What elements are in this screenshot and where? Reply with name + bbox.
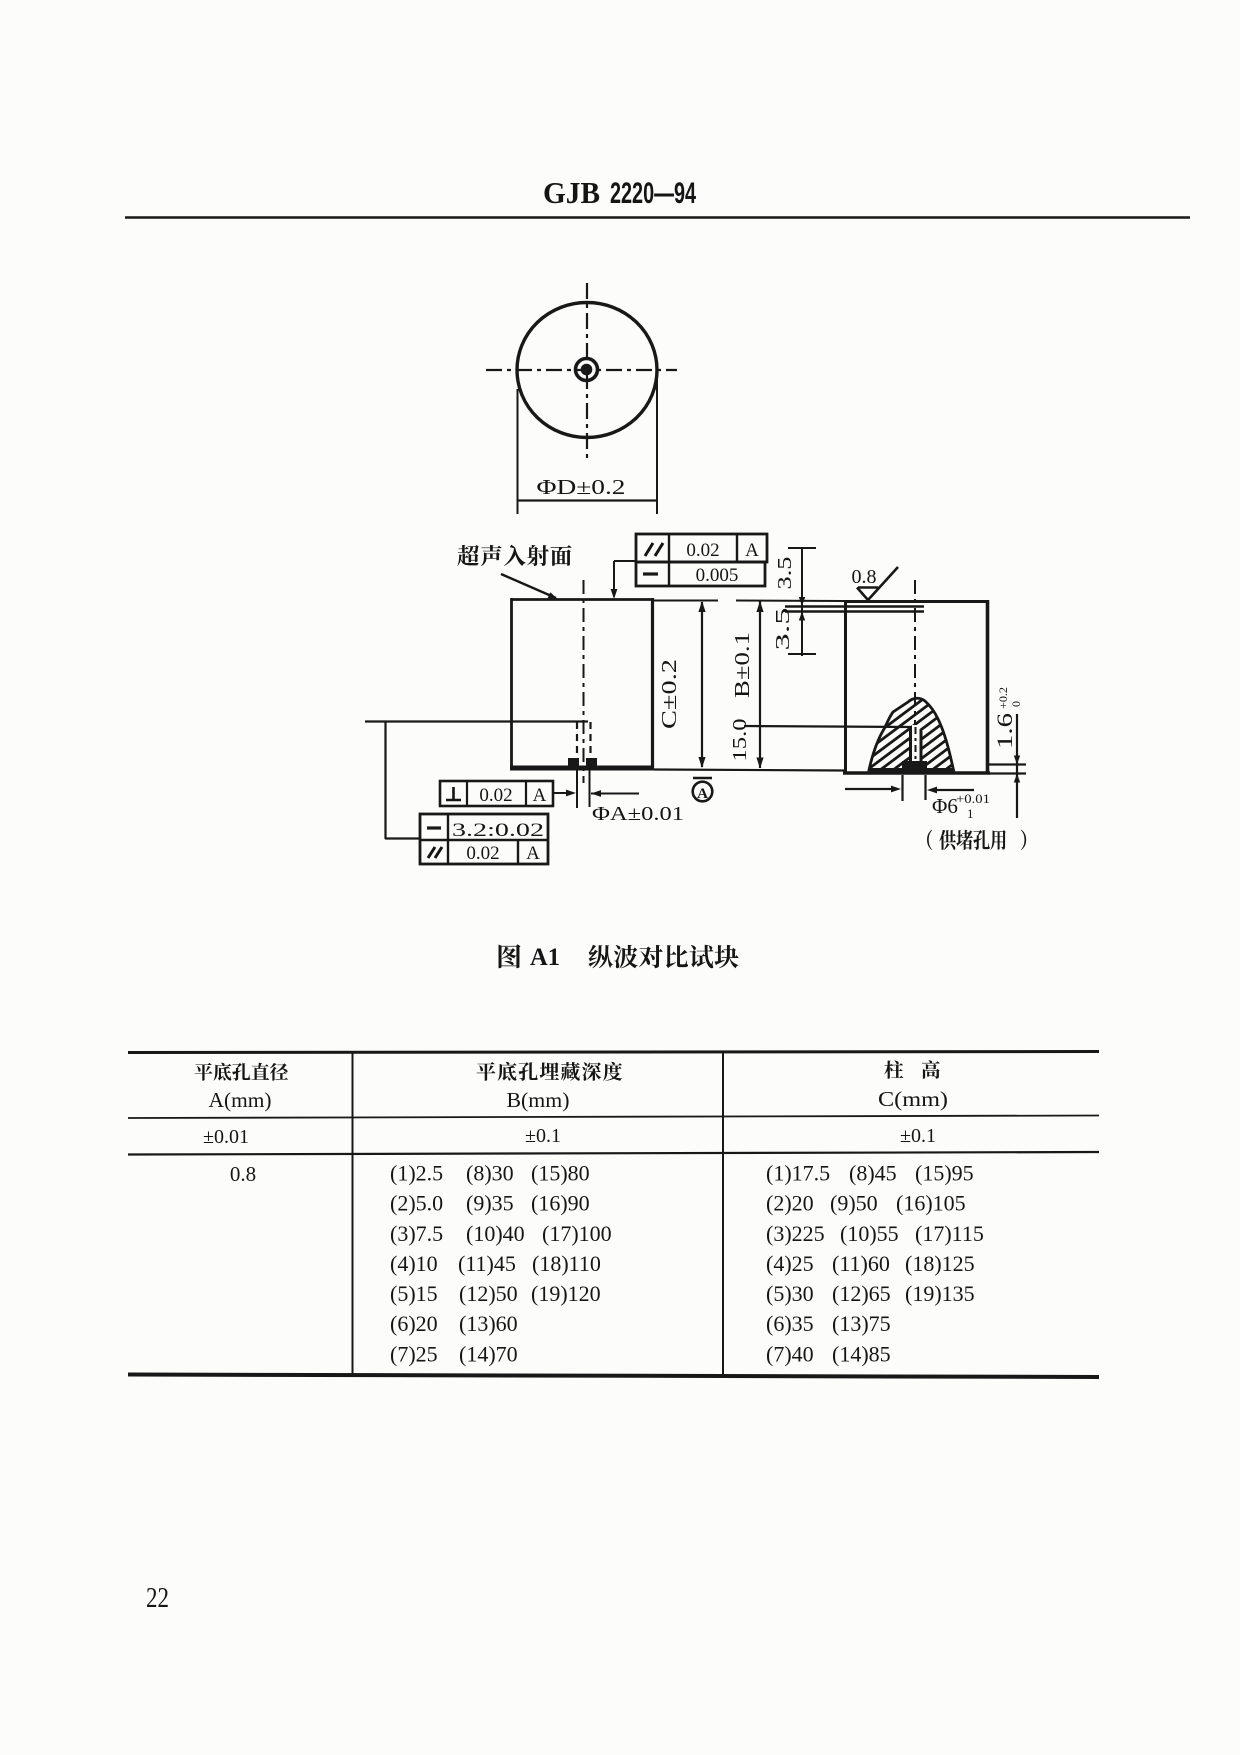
svg-text:(4)25: (4)25: [766, 1251, 814, 1276]
svg-text:22: 22: [146, 1582, 169, 1614]
svg-text:A1: A1: [530, 944, 560, 971]
svg-text:1: 1: [967, 806, 974, 821]
svg-text:B±0.1: B±0.1: [730, 632, 754, 698]
svg-text:0.005: 0.005: [696, 565, 739, 586]
svg-text:(14)85: (14)85: [832, 1341, 891, 1366]
svg-text:0.02: 0.02: [466, 843, 499, 864]
svg-text:0.8: 0.8: [230, 1162, 256, 1186]
svg-text:B(mm): B(mm): [507, 1088, 570, 1112]
svg-text:±0.1: ±0.1: [900, 1125, 936, 1147]
svg-text:ΦA±0.01: ΦA±0.01: [592, 803, 684, 825]
svg-text:ΦD±0.2: ΦD±0.2: [537, 475, 626, 499]
svg-text:(10)55: (10)55: [840, 1221, 899, 1246]
svg-text:(8)45: (8)45: [849, 1161, 897, 1186]
svg-text:0.8: 0.8: [852, 566, 877, 588]
svg-text:A: A: [526, 843, 540, 864]
svg-text:+0.2: +0.2: [996, 687, 1010, 709]
svg-text:(3)225: (3)225: [766, 1221, 825, 1246]
svg-text:(19)135: (19)135: [905, 1281, 975, 1306]
svg-text:3.5: 3.5: [772, 608, 794, 651]
svg-text:(17)100: (17)100: [542, 1221, 612, 1246]
svg-text:(5)30: (5)30: [766, 1281, 814, 1306]
svg-text:(13)60: (13)60: [459, 1311, 518, 1336]
svg-text:(17)115: (17)115: [915, 1221, 984, 1246]
svg-text:1.6: 1.6: [992, 713, 1017, 749]
svg-text:±0.01: ±0.01: [203, 1126, 249, 1148]
svg-text:(5)15: (5)15: [390, 1281, 438, 1306]
svg-text:(9)50: (9)50: [830, 1191, 878, 1216]
svg-text:(2)5.0: (2)5.0: [390, 1191, 443, 1216]
svg-text:(13)75: (13)75: [832, 1311, 891, 1336]
svg-text:2220—94: 2220—94: [610, 177, 696, 210]
svg-text:GJB: GJB: [543, 175, 600, 210]
svg-text:(6)20: (6)20: [390, 1311, 438, 1336]
svg-text:(10)40: (10)40: [466, 1221, 525, 1246]
svg-text:(8)30: (8)30: [466, 1161, 514, 1186]
svg-text:Φ6: Φ6: [932, 794, 958, 818]
svg-text:(12)50: (12)50: [459, 1281, 518, 1306]
svg-text:3.2:0.02: 3.2:0.02: [452, 820, 544, 841]
svg-text:0.02: 0.02: [479, 785, 512, 806]
svg-text:3.5: 3.5: [774, 557, 796, 590]
svg-text:A: A: [745, 540, 759, 561]
svg-text:(16)105: (16)105: [896, 1191, 966, 1216]
svg-text:(1)17.5: (1)17.5: [766, 1161, 830, 1186]
svg-text:(9)35: (9)35: [466, 1191, 514, 1216]
svg-text:(14)70: (14)70: [459, 1341, 518, 1366]
svg-text:0.02: 0.02: [686, 540, 719, 561]
svg-text:(12)65: (12)65: [832, 1281, 891, 1306]
svg-text:(7)40: (7)40: [766, 1341, 814, 1366]
svg-text:(4)10: (4)10: [390, 1251, 438, 1276]
svg-text:A(mm): A(mm): [209, 1088, 272, 1112]
svg-text:±0.1: ±0.1: [525, 1125, 561, 1147]
svg-text:(7)25: (7)25: [390, 1341, 438, 1366]
svg-text:(18)110: (18)110: [532, 1251, 601, 1276]
svg-text:C±0.2: C±0.2: [657, 659, 681, 729]
svg-text:(11)45: (11)45: [458, 1251, 516, 1276]
svg-text:A: A: [533, 785, 547, 806]
svg-text:+0.01: +0.01: [956, 791, 990, 806]
svg-text:(1)2.5: (1)2.5: [390, 1161, 443, 1186]
svg-text:0: 0: [1009, 701, 1023, 707]
svg-text:C(mm): C(mm): [878, 1087, 948, 1111]
svg-text:(15)95: (15)95: [915, 1161, 974, 1186]
svg-text:(3)7.5: (3)7.5: [390, 1221, 443, 1246]
svg-text:A: A: [697, 786, 708, 802]
svg-text:(6)35: (6)35: [766, 1311, 814, 1336]
svg-text:(18)125: (18)125: [905, 1251, 975, 1276]
svg-text:(2)20: (2)20: [766, 1191, 814, 1216]
svg-text:(15)80: (15)80: [531, 1161, 590, 1186]
svg-text:(19)120: (19)120: [531, 1281, 601, 1306]
svg-text:(16)90: (16)90: [531, 1191, 590, 1216]
svg-text:(11)60: (11)60: [832, 1251, 890, 1276]
